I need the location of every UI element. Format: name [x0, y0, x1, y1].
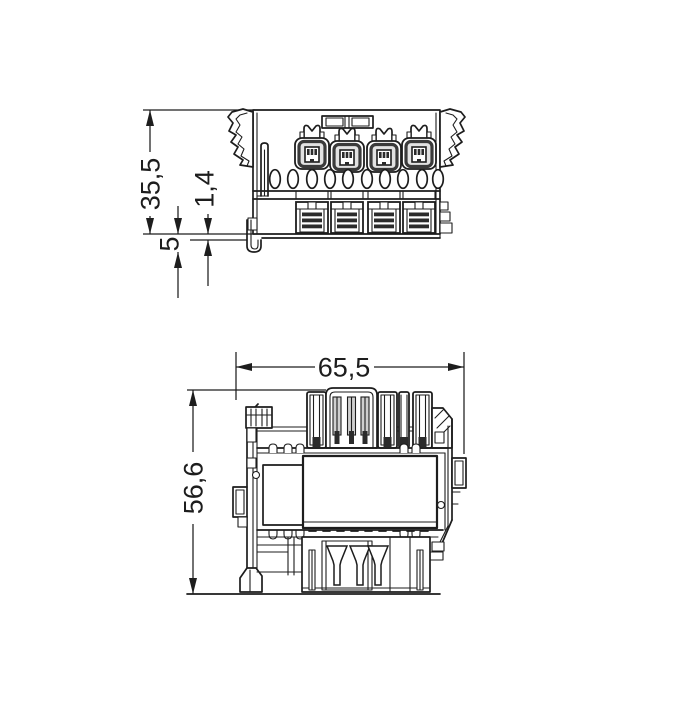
- side-dimensions: 35,5 1,4 5: [135, 110, 219, 298]
- clamp-tooth: [342, 152, 345, 158]
- wire-slot-notch: [380, 202, 388, 209]
- wire-slot-rib: [409, 225, 429, 229]
- clamp-tooth: [307, 149, 310, 155]
- right-corner-block: [432, 408, 452, 448]
- center-block: [326, 388, 377, 448]
- pin-tower-cap: [384, 437, 392, 447]
- dim-arrow: [204, 240, 212, 256]
- band-loop-top: [412, 444, 420, 453]
- dim-arrow: [448, 363, 464, 371]
- clamp-tooth: [418, 149, 421, 155]
- clamp-tooth: [414, 149, 417, 155]
- vent-hole: [362, 170, 373, 189]
- dim-total-height-label: 35,5: [135, 158, 165, 211]
- wire-slot-rib: [374, 225, 394, 229]
- dim-arrow: [146, 110, 154, 126]
- vent-hole: [433, 170, 444, 189]
- wire-slot-rib: [374, 219, 394, 223]
- drawing-svg: 35,5 1,4 5: [0, 0, 697, 703]
- pin-field: [302, 537, 430, 592]
- clamp-tooth: [314, 149, 317, 155]
- dim-foot-height-label: 5: [154, 236, 184, 251]
- technical-drawing-canvas: 35,5 1,4 5: [0, 0, 697, 703]
- vent-hole: [417, 170, 428, 189]
- wire-slot-rib: [337, 225, 357, 229]
- dim-arrow: [174, 218, 182, 234]
- dim-arrow: [204, 218, 212, 234]
- top-tab: [322, 116, 373, 128]
- band-loop-top: [400, 444, 408, 453]
- clamp-tooth: [346, 152, 349, 158]
- clamp-contact: [310, 159, 314, 163]
- wire-slot-rib: [302, 213, 322, 217]
- pilot-hole-right: [438, 502, 445, 509]
- vent-hole: [288, 170, 299, 189]
- left-lower-details: [257, 537, 302, 575]
- clamp-tooth: [311, 149, 314, 155]
- wire-slot-rib: [409, 219, 429, 223]
- dim-arrow: [189, 390, 197, 406]
- clamp-tooth: [379, 152, 382, 158]
- dim-total-width-label: 65,5: [318, 352, 371, 382]
- clamp-contact: [382, 162, 386, 166]
- clamp-contact: [345, 162, 349, 166]
- vent-hole: [307, 170, 318, 189]
- pilot-hole-left: [253, 472, 260, 479]
- dim-arrow: [189, 578, 197, 594]
- block-slat-tip: [363, 431, 368, 444]
- left-latch: [228, 109, 253, 167]
- band-loop-bottom: [269, 530, 277, 539]
- side-view: 35,5 1,4 5: [135, 109, 465, 298]
- vent-hole: [325, 170, 336, 189]
- wire-slot-notch: [308, 202, 316, 209]
- dim-arrow: [236, 363, 252, 371]
- block-slat-tip: [349, 431, 354, 444]
- wire-slot-rib: [337, 213, 357, 217]
- wire-slot-rib: [374, 213, 394, 217]
- vent-hole: [270, 170, 281, 189]
- wire-slot-notch: [343, 202, 351, 209]
- center-cavity: [263, 456, 437, 531]
- latch-top-view: [246, 407, 272, 428]
- right-latch: [440, 109, 465, 167]
- vent-hole: [343, 170, 354, 189]
- clamp-tooth: [421, 149, 424, 155]
- dim-total-depth-label: 56,6: [178, 462, 208, 515]
- cavity-main-box: [303, 456, 437, 528]
- band-loop-top: [269, 444, 277, 453]
- vent-hole: [398, 170, 409, 189]
- clamp-tooth: [349, 152, 352, 158]
- wire-slot-notch: [415, 202, 423, 209]
- wire-slot-rib: [337, 219, 357, 223]
- dim-arrow: [174, 252, 182, 268]
- cavity-left-box: [263, 465, 303, 525]
- block-slat-tip: [335, 431, 340, 444]
- clamp-tooth: [383, 152, 386, 158]
- wire-slot-rib: [302, 225, 322, 229]
- clamp-contact: [417, 159, 421, 163]
- wire-slot-rib: [409, 213, 429, 217]
- band-loop-top: [296, 444, 304, 453]
- pin-tower-cap: [313, 437, 321, 447]
- wire-slot-rib: [302, 219, 322, 223]
- top-view: 65,5 56,6: [178, 352, 466, 594]
- dim-rail-lip-label: 1,4: [189, 170, 219, 208]
- band-loop-top: [284, 444, 292, 453]
- clamp-tooth: [386, 152, 389, 158]
- vent-hole: [380, 170, 391, 189]
- dim-arrow: [146, 218, 154, 234]
- right-side-steps: [440, 202, 452, 233]
